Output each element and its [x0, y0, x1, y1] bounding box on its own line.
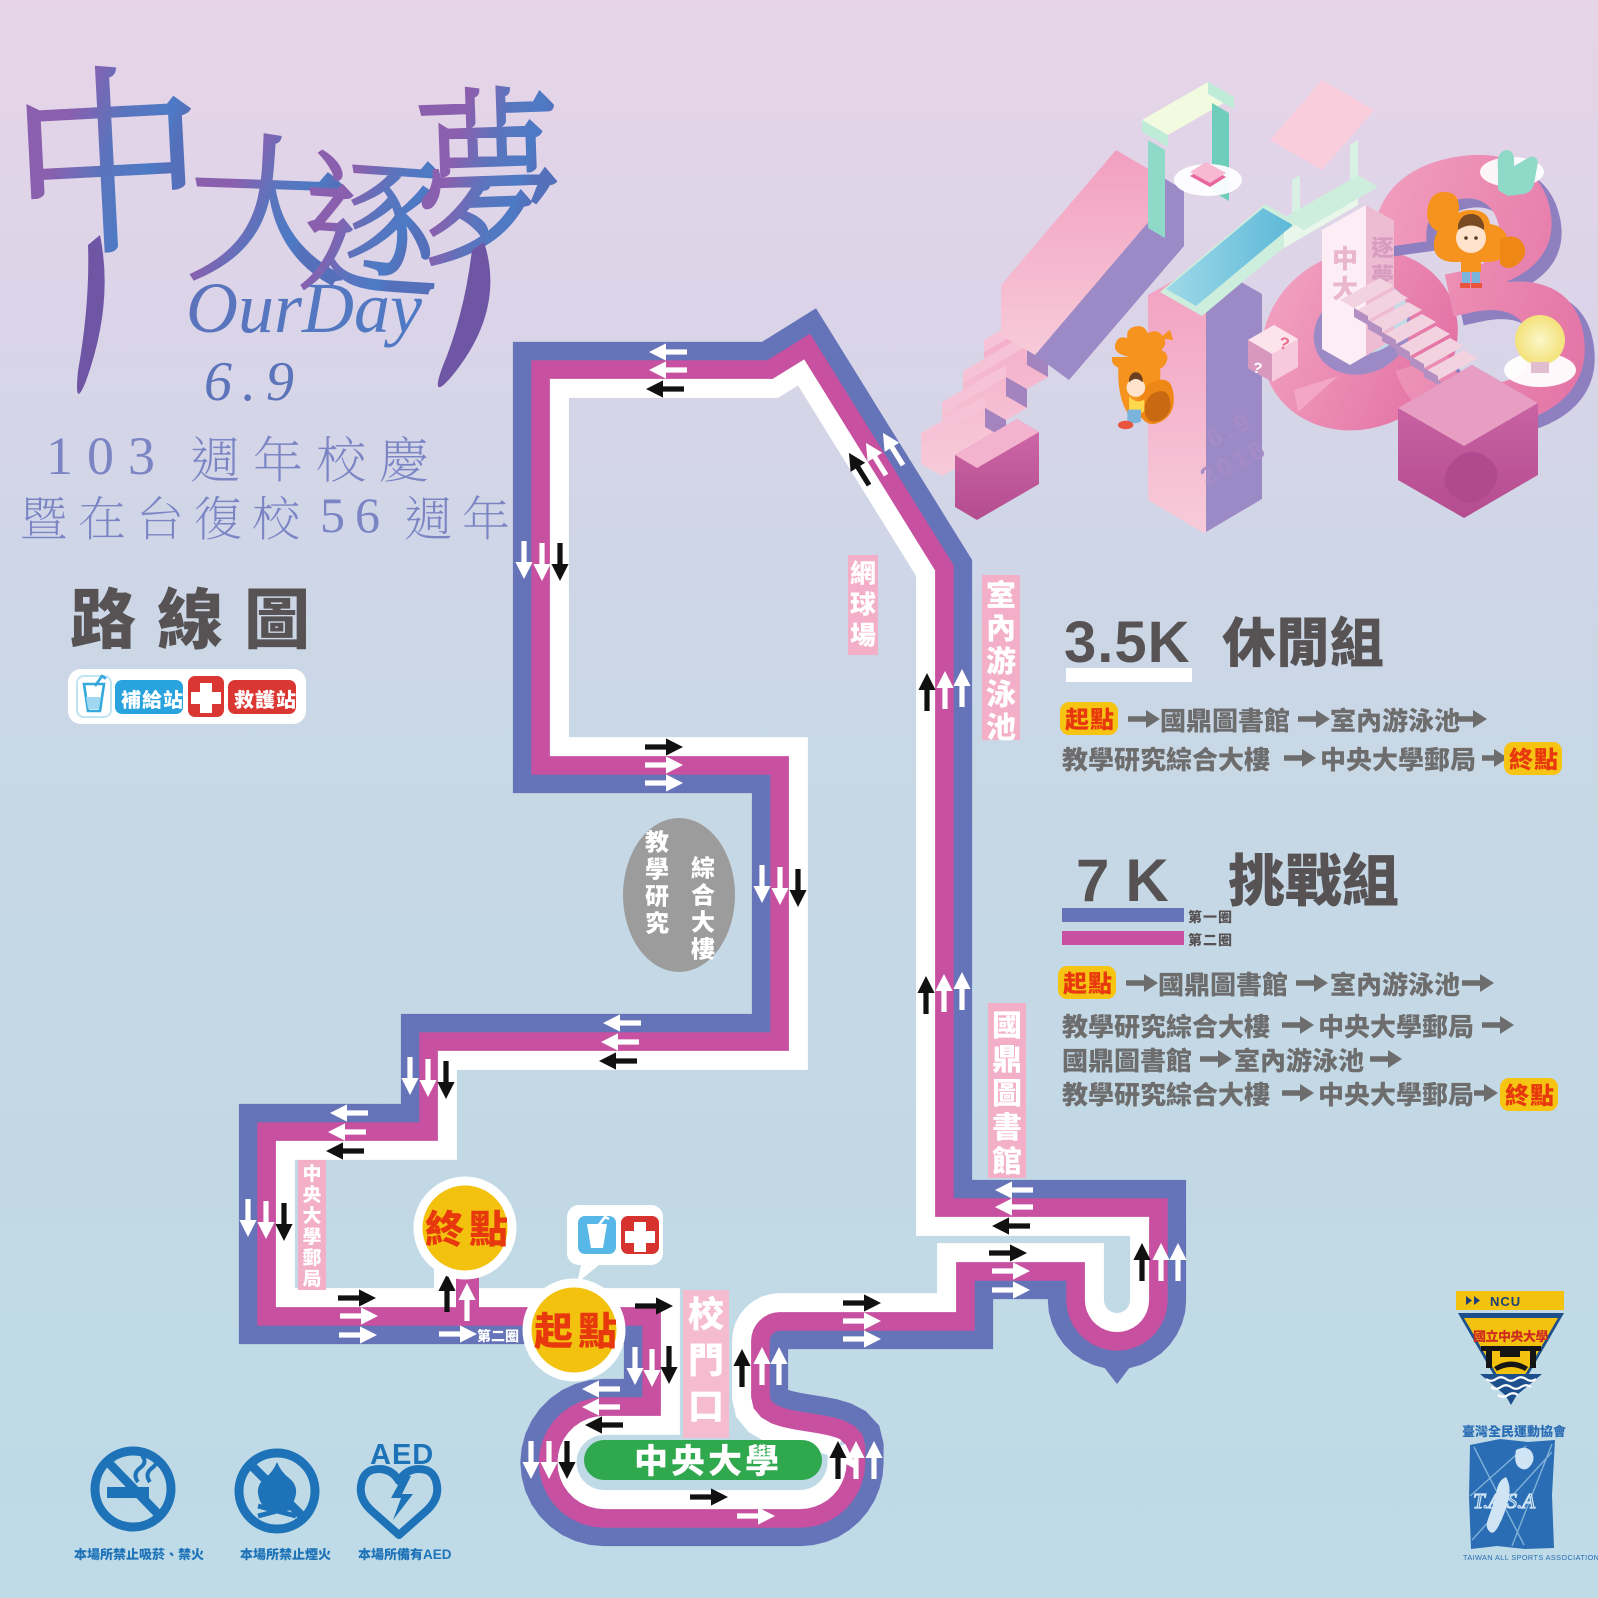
svg-text:NCU: NCU [1490, 1294, 1521, 1309]
svg-text:3.5K: 3.5K [1064, 610, 1191, 675]
svg-text:6.9: 6.9 [204, 351, 304, 413]
svg-text:TAIWAN ALL SPORTS ASSOCIATI: TAIWAN ALL SPORTS ASSOCIATION [1463, 1553, 1598, 1562]
svg-text:AED: AED [423, 1547, 452, 1562]
svg-text:56: 56 [320, 487, 390, 543]
svg-text:103: 103 [46, 426, 169, 486]
svg-text:T.A.S.A: T.A.S.A [1473, 1489, 1535, 1513]
svg-text:7K: 7K [1076, 847, 1185, 914]
svg-text:OurDay: OurDay [186, 268, 422, 348]
